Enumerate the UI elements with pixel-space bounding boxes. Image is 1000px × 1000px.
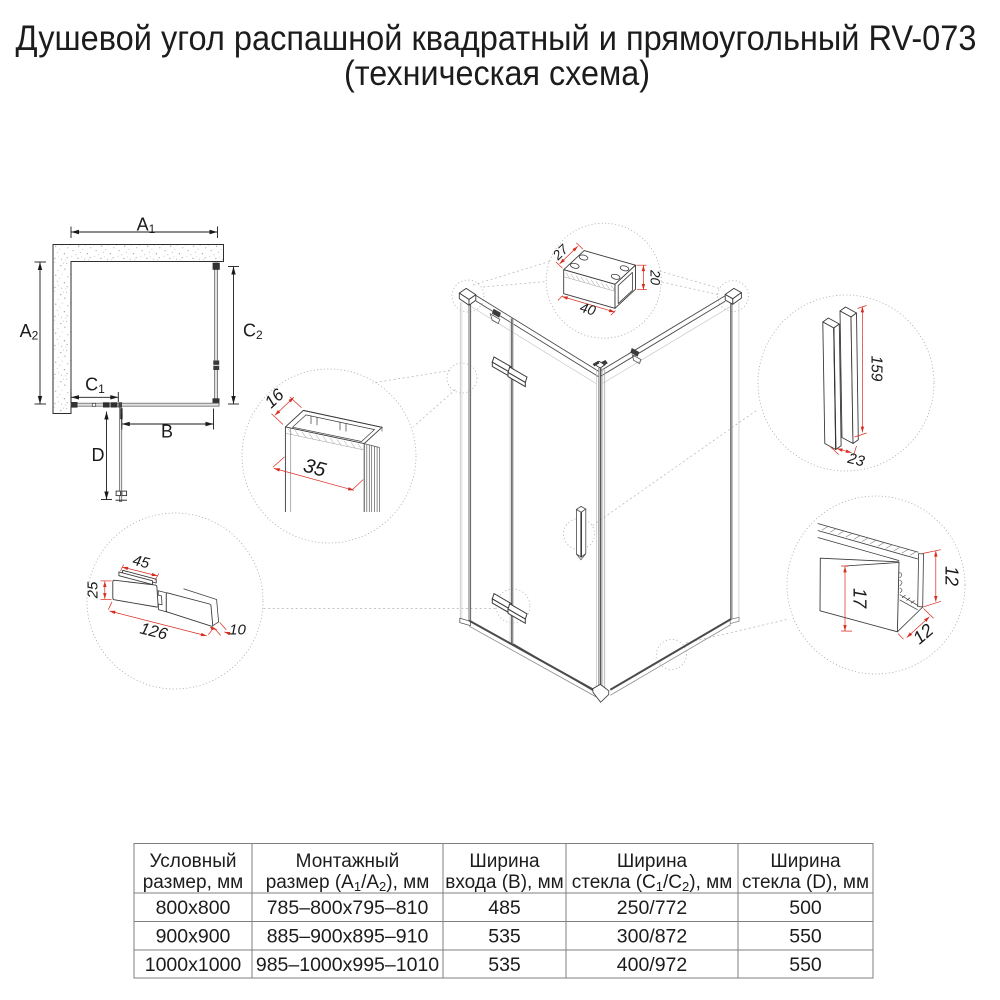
svg-text:Ширина: Ширина [469, 851, 540, 872]
svg-text:485: 485 [488, 897, 521, 919]
svg-text:Монтажный: Монтажный [296, 851, 400, 872]
svg-text:900х900: 900х900 [156, 926, 231, 948]
svg-text:размер (А1/А2), мм: размер (А1/А2), мм [266, 872, 430, 894]
svg-text:Условный: Условный [149, 851, 236, 872]
svg-text:10: 10 [229, 622, 246, 639]
svg-text:785–800х795–810: 785–800х795–810 [267, 897, 429, 919]
svg-text:985–1000х995–1010: 985–1000х995–1010 [256, 954, 439, 976]
svg-text:12: 12 [942, 566, 962, 586]
svg-text:800х800: 800х800 [156, 897, 231, 919]
svg-text:стекла (С1/С2), мм: стекла (С1/С2), мм [572, 872, 733, 894]
svg-text:885–900х895–910: 885–900х895–910 [267, 926, 429, 948]
svg-text:входа (В), мм: входа (В), мм [445, 872, 563, 893]
svg-text:25: 25 [85, 581, 102, 599]
svg-text:17: 17 [850, 588, 870, 609]
svg-text:550: 550 [789, 954, 822, 976]
svg-text:Душевой угол распашной квадрат: Душевой угол распашной квадратный и прям… [16, 18, 977, 58]
svg-text:1000х1000: 1000х1000 [145, 954, 242, 976]
svg-text:20: 20 [648, 269, 663, 286]
svg-text:500: 500 [789, 897, 822, 919]
svg-text:B: B [161, 422, 173, 442]
svg-text:535: 535 [488, 926, 521, 948]
svg-text:(техническая схема): (техническая схема) [344, 53, 650, 93]
svg-text:стекла (D), мм: стекла (D), мм [742, 872, 869, 893]
svg-text:400/972: 400/972 [617, 954, 688, 976]
svg-text:D: D [92, 445, 105, 465]
svg-text:250/772: 250/772 [617, 897, 688, 919]
svg-text:535: 535 [488, 954, 521, 976]
svg-text:550: 550 [789, 926, 822, 948]
svg-text:300/872: 300/872 [617, 926, 688, 948]
svg-text:размер, мм: размер, мм [143, 872, 244, 893]
svg-text:Ширина: Ширина [617, 851, 688, 872]
svg-text:Ширина: Ширина [770, 851, 841, 872]
svg-text:159: 159 [868, 356, 885, 382]
